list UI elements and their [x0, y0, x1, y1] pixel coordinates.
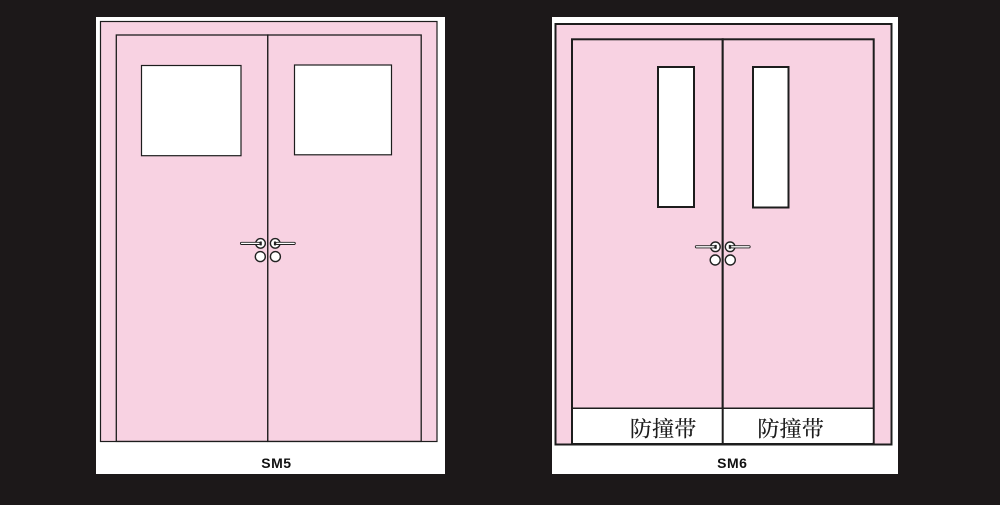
svg-text:SM6: SM6 [717, 455, 747, 471]
svg-text:SM5: SM5 [261, 455, 291, 471]
